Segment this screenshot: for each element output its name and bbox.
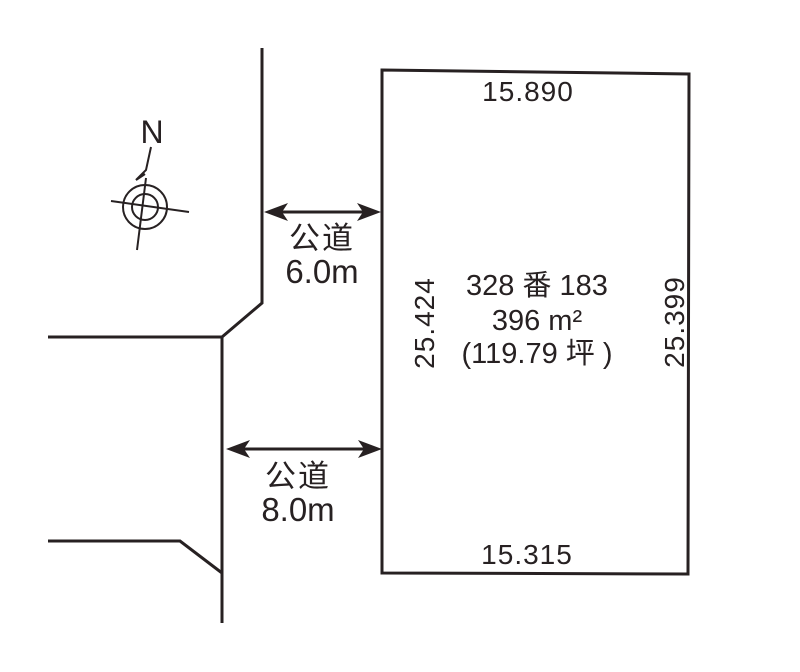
road-label-upper: 公道 6.0m <box>285 221 358 290</box>
compass-north-label: N <box>140 114 163 150</box>
plot-dimension-bottom: 15.315 <box>481 539 573 570</box>
road-width-arrow-lower <box>226 440 382 458</box>
plot-lot-number: 328 番 183 <box>466 270 608 302</box>
road-type-lower: 公道 <box>265 459 331 494</box>
plot-dimension-left: 25.424 <box>409 277 440 369</box>
north-compass-icon: N <box>111 114 189 250</box>
road-width-lower: 8.0m <box>261 491 334 528</box>
compass-needle <box>136 147 151 180</box>
road-boundary-upper-block <box>48 48 262 337</box>
site-plan-page: N 15.890 15.315 25.424 25.399 328 番 183 … <box>0 0 800 672</box>
road-label-lower: 公道 8.0m <box>261 459 334 528</box>
plot-dimension-right: 25.399 <box>659 276 690 368</box>
road-boundary-lower-block <box>48 541 222 573</box>
plot-dimension-top: 15.890 <box>482 76 574 107</box>
plot-area-tsubo: (119.79 坪 ) <box>462 337 613 370</box>
compass-axis-vertical <box>137 178 146 250</box>
road-width-upper: 6.0m <box>285 253 358 290</box>
road-width-arrow-upper <box>264 203 381 221</box>
site-plan-drawing: N 15.890 15.315 25.424 25.399 328 番 183 … <box>0 0 800 672</box>
road-type-upper: 公道 <box>289 221 355 256</box>
plot-area-sqm: 396 m² <box>492 305 583 337</box>
